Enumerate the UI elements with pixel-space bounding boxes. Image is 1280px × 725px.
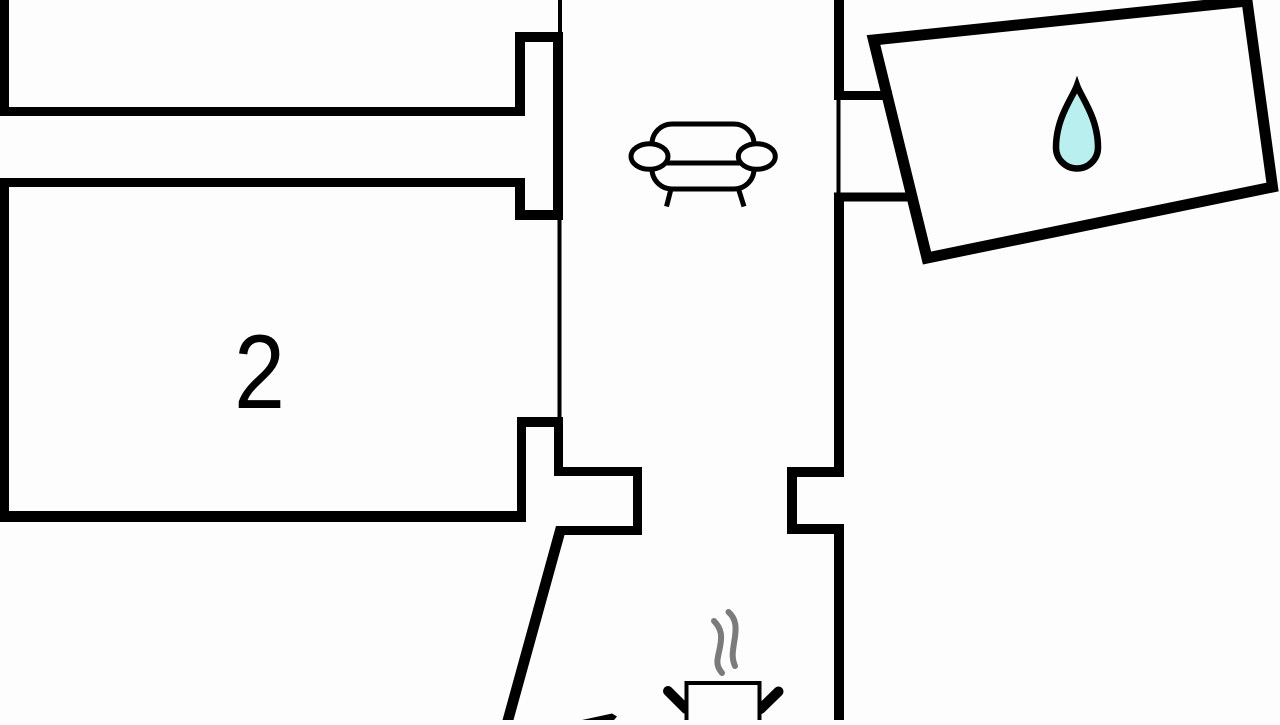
svg-text:2: 2 xyxy=(234,313,285,430)
